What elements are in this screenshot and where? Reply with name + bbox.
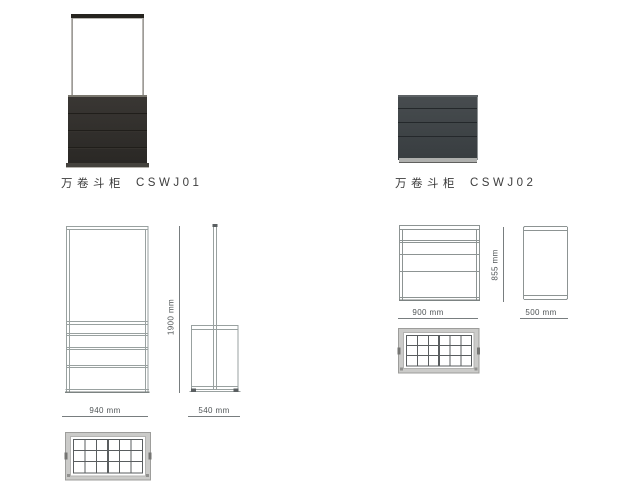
product-photo-cswj02 <box>398 95 478 163</box>
dimension-height-cswj02: 855 mm <box>491 249 500 280</box>
chest-plinth <box>399 158 477 163</box>
cswj01-top-view <box>65 433 152 481</box>
dimension-width-cswj02: 900 mm <box>412 308 443 317</box>
dimension-depth-cswj02: 500 mm <box>525 308 556 317</box>
dimension-depth-cswj01: 540 mm <box>198 406 229 415</box>
frame-right-post <box>142 18 144 95</box>
drawer-divider <box>68 113 147 115</box>
chest-top-edge <box>68 95 147 97</box>
product-photo-cswj01 <box>66 14 149 168</box>
drawer-divider <box>398 136 478 137</box>
product-label-cswj02: 万卷斗柜 CSWJ02 <box>395 176 536 189</box>
product-name: 万卷斗柜 <box>61 175 125 191</box>
catalog-page: 万卷斗柜 CSWJ01 万卷斗柜 CSWJ02 <box>0 0 625 500</box>
frame-left-post <box>71 18 73 95</box>
cswj02-technical-drawing <box>385 218 580 380</box>
dimension-height-cswj01: 1900 mm <box>167 299 176 335</box>
cswj01-side-elevation <box>190 224 241 392</box>
chest-plinth <box>66 163 149 168</box>
product-label-cswj01: 万卷斗柜 CSWJ01 <box>61 176 202 189</box>
edge-highlight <box>477 97 478 160</box>
drawer-divider <box>398 122 478 123</box>
product-code: CSWJ01 <box>136 177 202 189</box>
product-code: CSWJ02 <box>470 177 536 189</box>
cswj01-technical-drawing <box>50 215 255 490</box>
product-name: 万卷斗柜 <box>395 175 459 191</box>
cswj02-front-elevation <box>399 226 480 301</box>
cswj01-front-elevation <box>65 227 150 393</box>
chest-body <box>398 95 478 160</box>
dimension-width-cswj01: 940 mm <box>89 406 120 415</box>
frame-top-bar <box>71 14 144 19</box>
cswj02-side-elevation <box>524 227 568 300</box>
cswj02-top-view <box>398 329 481 374</box>
drawer-divider <box>398 108 478 109</box>
chest-body <box>68 95 147 163</box>
drawer-divider <box>68 130 147 132</box>
drawer-divider <box>68 147 147 149</box>
